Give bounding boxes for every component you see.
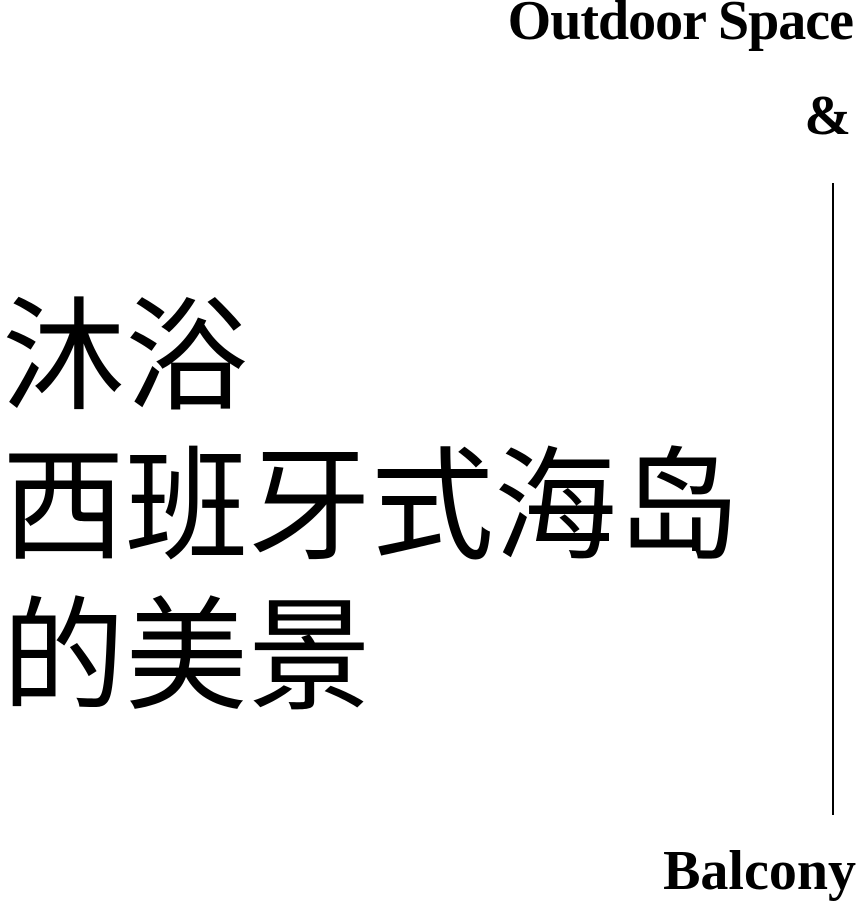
chinese-title-block: 沐浴 西班牙式海岛 的美景: [2, 283, 740, 733]
vertical-divider-line: [832, 183, 834, 815]
english-footer-label: Balcony: [663, 843, 856, 899]
english-title: Outdoor Space: [508, 0, 853, 49]
ampersand-text: &: [804, 88, 851, 144]
chinese-title-line-2: 西班牙式海岛: [2, 433, 740, 583]
article-cover-page: Outdoor Space & 沐浴 西班牙式海岛 的美景 Balcony: [0, 0, 860, 903]
chinese-title-line-1: 沐浴: [2, 283, 740, 433]
chinese-title-line-3: 的美景: [2, 583, 740, 733]
